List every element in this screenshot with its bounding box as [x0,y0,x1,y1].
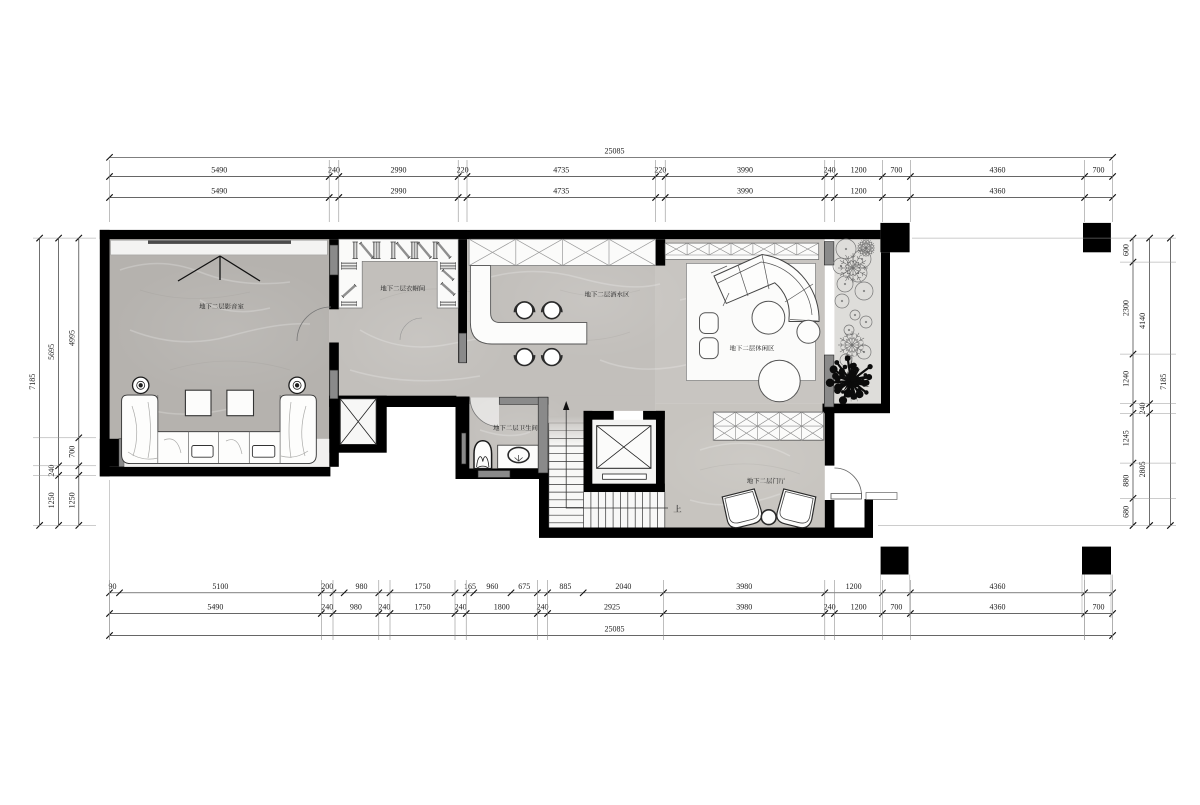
svg-text:7185: 7185 [1159,374,1168,390]
svg-text:1800: 1800 [494,603,510,612]
svg-text:1240: 1240 [1122,371,1131,387]
svg-text:5490: 5490 [211,166,227,175]
svg-text:240: 240 [328,166,340,175]
svg-text:3980: 3980 [736,603,752,612]
svg-text:680: 680 [1122,506,1131,518]
svg-text:1250: 1250 [47,492,56,508]
svg-text:1250: 1250 [67,492,76,508]
svg-text:700: 700 [890,603,902,612]
svg-text:2990: 2990 [391,166,407,175]
svg-text:960: 960 [486,582,498,591]
svg-text:240: 240 [1138,403,1147,415]
svg-text:980: 980 [350,603,362,612]
svg-text:165: 165 [464,582,476,591]
svg-text:4360: 4360 [990,187,1006,196]
svg-text:4735: 4735 [553,166,569,175]
svg-text:700: 700 [890,166,902,175]
svg-text:2805: 2805 [1138,461,1147,477]
svg-text:2040: 2040 [615,582,631,591]
svg-text:3990: 3990 [737,166,753,175]
svg-text:240: 240 [47,465,56,477]
svg-text:1750: 1750 [415,582,431,591]
svg-text:25085: 25085 [605,625,625,634]
svg-text:4735: 4735 [553,187,569,196]
svg-text:220: 220 [654,166,666,175]
svg-text:2300: 2300 [1122,300,1131,316]
svg-text:675: 675 [518,582,530,591]
svg-text:200: 200 [321,582,333,591]
svg-text:980: 980 [356,582,368,591]
svg-text:240: 240 [378,603,390,612]
svg-text:1750: 1750 [415,603,431,612]
svg-text:5490: 5490 [211,187,227,196]
svg-text:880: 880 [1122,475,1131,487]
svg-text:240: 240 [455,603,467,612]
svg-text:4360: 4360 [990,582,1006,591]
svg-text:4360: 4360 [990,603,1006,612]
svg-text:1245: 1245 [1122,430,1131,446]
svg-text:240: 240 [824,603,836,612]
svg-text:2925: 2925 [604,603,620,612]
svg-text:2990: 2990 [391,187,407,196]
svg-text:240: 240 [321,603,333,612]
svg-text:700: 700 [1093,166,1105,175]
svg-text:1200: 1200 [846,582,862,591]
svg-text:7185: 7185 [28,374,37,390]
svg-text:4995: 4995 [67,330,76,346]
svg-text:1200: 1200 [851,187,867,196]
svg-text:700: 700 [67,446,76,458]
svg-text:25085: 25085 [605,147,625,156]
svg-text:4140: 4140 [1138,313,1147,329]
svg-text:4360: 4360 [990,166,1006,175]
svg-text:3980: 3980 [736,582,752,591]
svg-text:5100: 5100 [212,582,228,591]
svg-text:240: 240 [824,166,836,175]
svg-text:5490: 5490 [207,603,223,612]
svg-text:1200: 1200 [851,166,867,175]
svg-text:1200: 1200 [851,603,867,612]
svg-text:600: 600 [1122,244,1131,256]
svg-text:885: 885 [559,582,571,591]
svg-text:240: 240 [537,603,549,612]
svg-text:3990: 3990 [737,187,753,196]
svg-text:700: 700 [1093,603,1105,612]
svg-text:5695: 5695 [47,344,56,360]
